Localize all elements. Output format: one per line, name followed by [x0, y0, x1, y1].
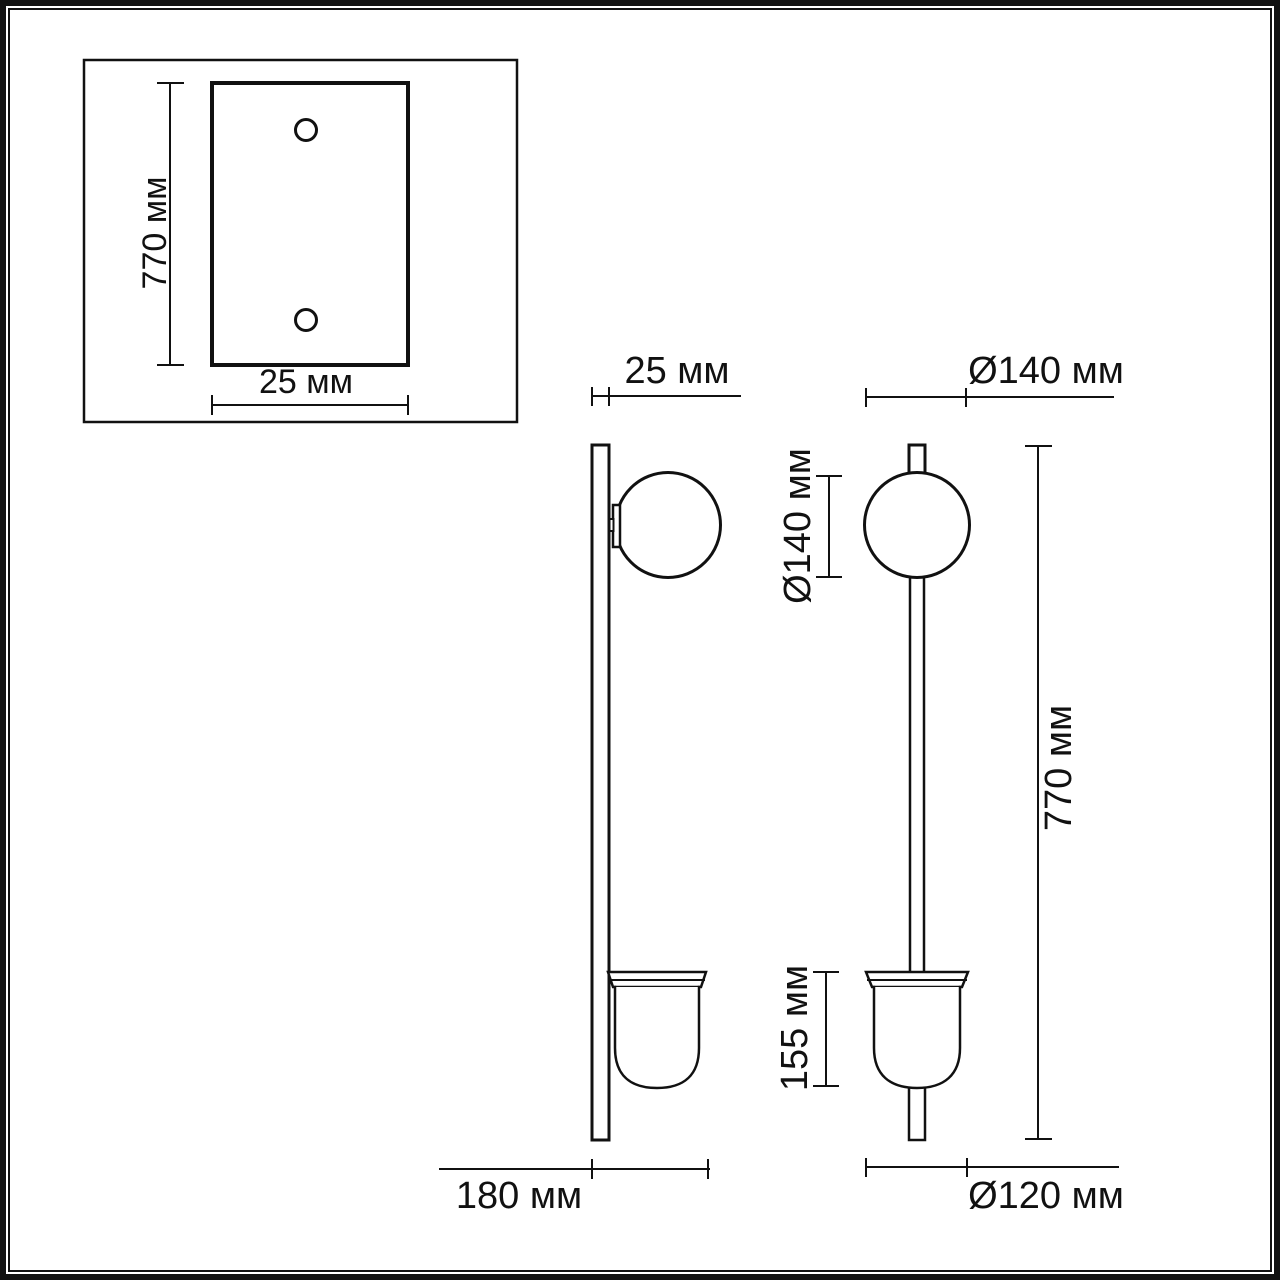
- globe-shade-side: [616, 473, 721, 578]
- plate-thickness-dimension-label: 25 мм: [624, 352, 729, 390]
- globe-shade-front: [865, 473, 970, 578]
- globe-height-dimension-line: [817, 476, 841, 577]
- plate-width-dimension-label: 25 мм: [259, 365, 353, 399]
- mounting-plate: [212, 83, 408, 365]
- globe-height-dimension-label: Ø140 мм: [779, 448, 817, 604]
- shade-height-dimension-label: 155 мм: [776, 965, 814, 1091]
- glass-shade-body-side: [615, 987, 699, 1088]
- wall-plate-side: [592, 445, 609, 1140]
- lamp-dimension-drawing: 770 мм 25 мм 25 мм 180 мм Ø140 мм Ø140 м…: [0, 0, 1280, 1280]
- protrusion-dimension-label: 180 мм: [456, 1177, 582, 1215]
- plate-height-dimension-label: 770 мм: [138, 177, 172, 290]
- rod-front: [910, 570, 924, 973]
- total-height-dimension-label: 770 мм: [1040, 705, 1078, 831]
- line-art: [0, 0, 1280, 1280]
- shade-diameter-dimension-label: Ø120 мм: [968, 1177, 1124, 1215]
- side-view: [440, 388, 740, 1178]
- shade-height-dimension-line: [814, 972, 838, 1086]
- globe-diameter-dimension-label: Ø140 мм: [968, 352, 1124, 390]
- glass-shade-body-front: [874, 987, 960, 1088]
- shade-diameter-dimension-line: [866, 1159, 1118, 1176]
